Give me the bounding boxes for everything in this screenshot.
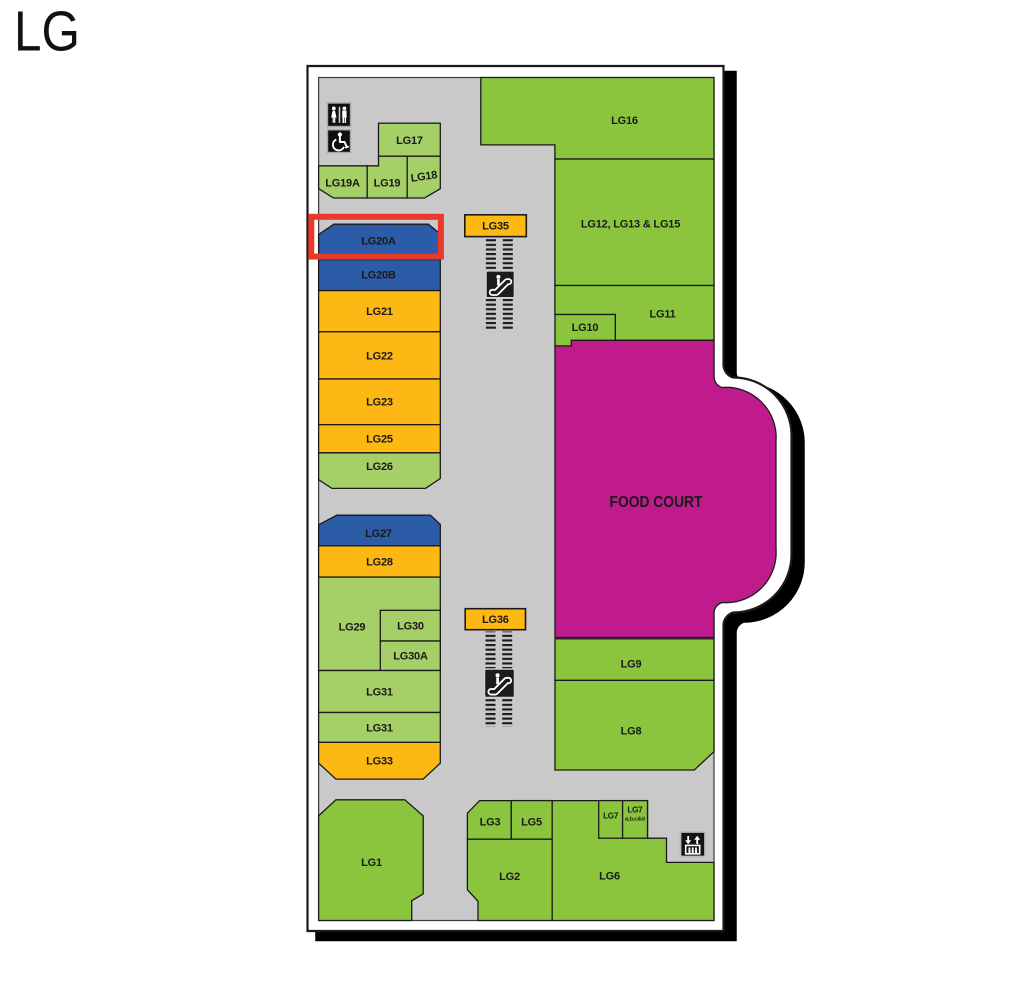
svg-text:a,b,c&d: a,b,c&d	[625, 817, 645, 823]
svg-text:LG27: LG27	[365, 528, 392, 540]
svg-text:FOOD COURT: FOOD COURT	[610, 494, 703, 511]
svg-text:LG20B: LG20B	[361, 270, 396, 282]
svg-text:LG21: LG21	[366, 306, 393, 318]
svg-text:LG26: LG26	[366, 461, 393, 473]
svg-text:LG20A: LG20A	[361, 236, 396, 248]
svg-text:LG36: LG36	[482, 614, 509, 626]
svg-text:LG1: LG1	[361, 857, 382, 869]
svg-text:LG10: LG10	[572, 322, 599, 334]
svg-text:LG25: LG25	[366, 434, 393, 446]
svg-text:LG19: LG19	[374, 178, 401, 190]
svg-text:LG29: LG29	[339, 622, 366, 634]
svg-text:LG6: LG6	[599, 871, 620, 883]
svg-text:LG23: LG23	[366, 397, 393, 409]
svg-text:LG11: LG11	[649, 309, 675, 321]
svg-text:LG31: LG31	[366, 723, 393, 735]
svg-text:LG: LG	[14, 0, 80, 64]
svg-text:LG30A: LG30A	[393, 651, 428, 663]
svg-text:LG30: LG30	[397, 621, 424, 633]
svg-text:LG2: LG2	[499, 871, 520, 883]
svg-text:LG31: LG31	[366, 687, 393, 699]
svg-text:LG7: LG7	[603, 812, 619, 821]
svg-text:LG17: LG17	[396, 135, 423, 147]
svg-text:LG16: LG16	[611, 115, 638, 127]
svg-text:LG7: LG7	[627, 806, 643, 815]
svg-text:LG35: LG35	[482, 221, 509, 233]
svg-text:LG28: LG28	[366, 557, 393, 569]
svg-text:LG8: LG8	[621, 726, 642, 738]
svg-text:LG19A: LG19A	[325, 178, 360, 190]
svg-text:LG5: LG5	[521, 817, 542, 829]
svg-text:LG9: LG9	[621, 659, 642, 671]
svg-text:LG22: LG22	[366, 351, 393, 363]
svg-text:LG33: LG33	[366, 756, 393, 768]
svg-text:LG3: LG3	[480, 817, 501, 829]
svg-text:LG12, LG13 & LG15: LG12, LG13 & LG15	[581, 219, 680, 231]
